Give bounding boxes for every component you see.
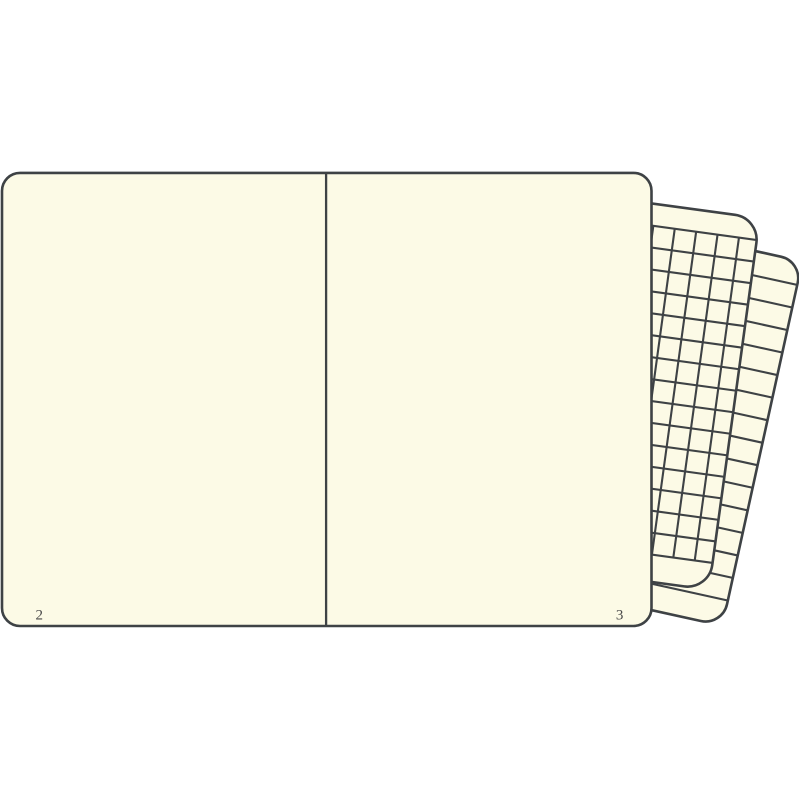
svg-text:2: 2 xyxy=(35,607,43,623)
svg-text:3: 3 xyxy=(616,607,624,623)
